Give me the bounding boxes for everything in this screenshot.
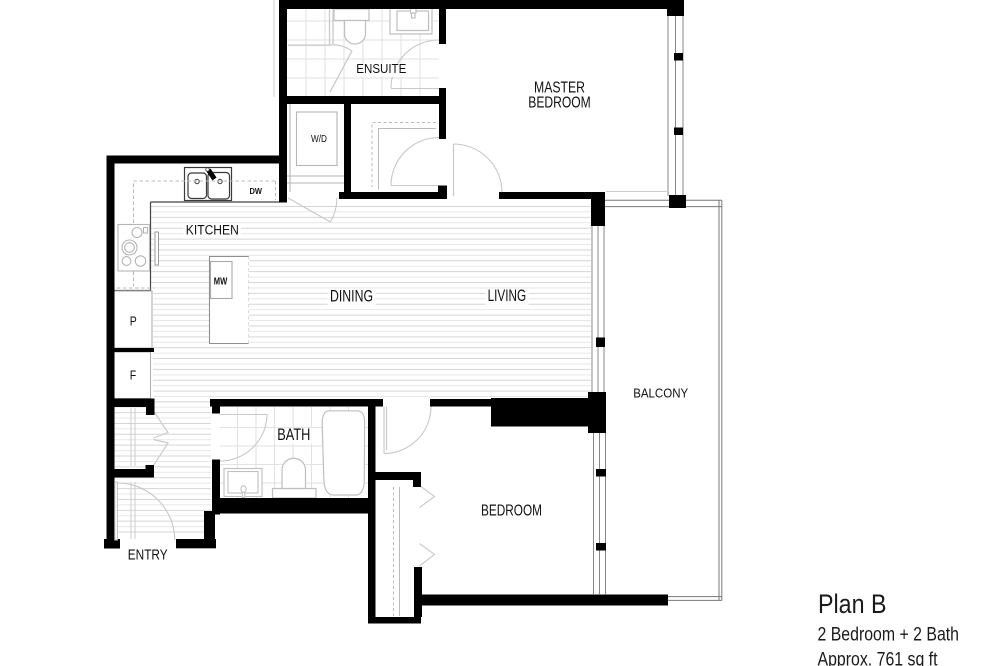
svg-text:ENTRY: ENTRY — [128, 547, 168, 564]
svg-text:LIVING: LIVING — [488, 287, 527, 305]
svg-text:BATH: BATH — [277, 426, 310, 444]
svg-text:DW: DW — [249, 187, 262, 196]
svg-text:BALCONY: BALCONY — [633, 386, 688, 401]
svg-text:KITCHEN: KITCHEN — [186, 222, 239, 237]
svg-text:ENSUITE: ENSUITE — [356, 61, 406, 76]
svg-text:BEDROOM: BEDROOM — [481, 502, 542, 519]
svg-text:DINING: DINING — [330, 288, 373, 306]
svg-text:Approx. 761 sq ft: Approx. 761 sq ft — [818, 649, 938, 666]
svg-text:MW: MW — [214, 277, 228, 288]
svg-text:BEDROOM: BEDROOM — [528, 95, 591, 112]
svg-text:2 Bedroom + 2 Bath: 2 Bedroom + 2 Bath — [818, 624, 960, 646]
svg-text:P: P — [130, 314, 137, 329]
svg-text:F: F — [130, 367, 137, 382]
svg-text:W/D: W/D — [311, 133, 327, 145]
svg-text:Plan B: Plan B — [818, 589, 887, 619]
